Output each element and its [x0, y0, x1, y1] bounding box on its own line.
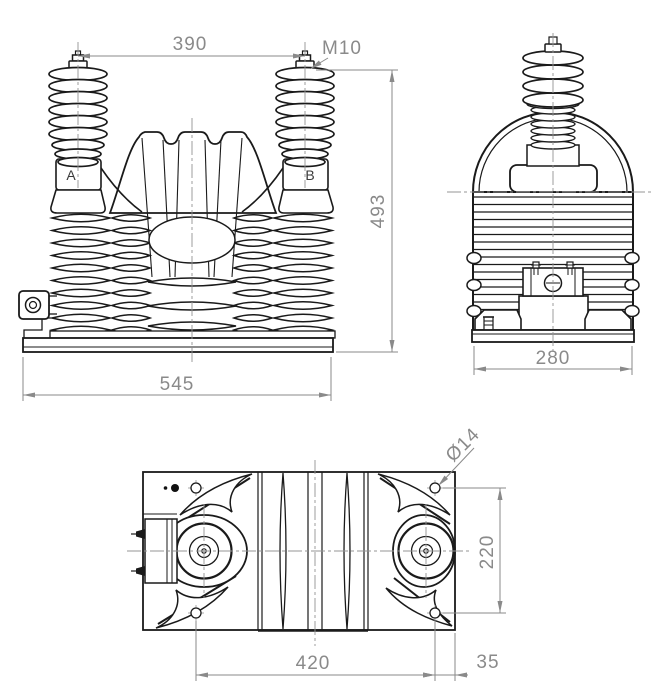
dim-edge-offset: 35: [423, 652, 500, 678]
callout-thread-m10: M10: [310, 38, 362, 69]
terminal-b-label: B: [305, 167, 314, 183]
svg-text:M10: M10: [322, 38, 362, 59]
bracket-screw-top: [136, 529, 145, 539]
dim-base-width: 545: [23, 357, 331, 401]
svg-text:280: 280: [536, 348, 571, 369]
transformer-outline-drawing: A B 390 M10 493: [0, 0, 652, 699]
dim-depth: 280: [474, 346, 632, 375]
svg-text:Ø14: Ø14: [442, 424, 484, 466]
svg-text:493: 493: [368, 194, 389, 229]
side-bushing: [510, 37, 597, 192]
side-terminal-box: [519, 262, 588, 330]
svg-text:35: 35: [476, 652, 499, 673]
svg-text:545: 545: [160, 374, 195, 395]
svg-text:420: 420: [296, 653, 331, 674]
top-view: Ø14 220 420 35: [127, 424, 506, 681]
svg-text:220: 220: [477, 535, 498, 570]
bracket-screw-bottom: [136, 566, 145, 576]
dim-bushing-spacing: 390: [78, 34, 305, 59]
svg-text:390: 390: [173, 34, 208, 55]
side-view: 280: [447, 33, 651, 375]
callout-hole-diameter: Ø14: [438, 424, 484, 486]
top-terminal-bracket: [131, 514, 177, 583]
technical-drawing-sheet: A B 390 M10 493: [0, 0, 652, 699]
front-view: A B 390 M10 493: [19, 34, 398, 401]
terminal-a-label: A: [66, 167, 76, 183]
foot-bolt: [483, 317, 494, 330]
top-marker-dot-small: [164, 486, 168, 490]
top-marker-dot: [171, 484, 179, 492]
